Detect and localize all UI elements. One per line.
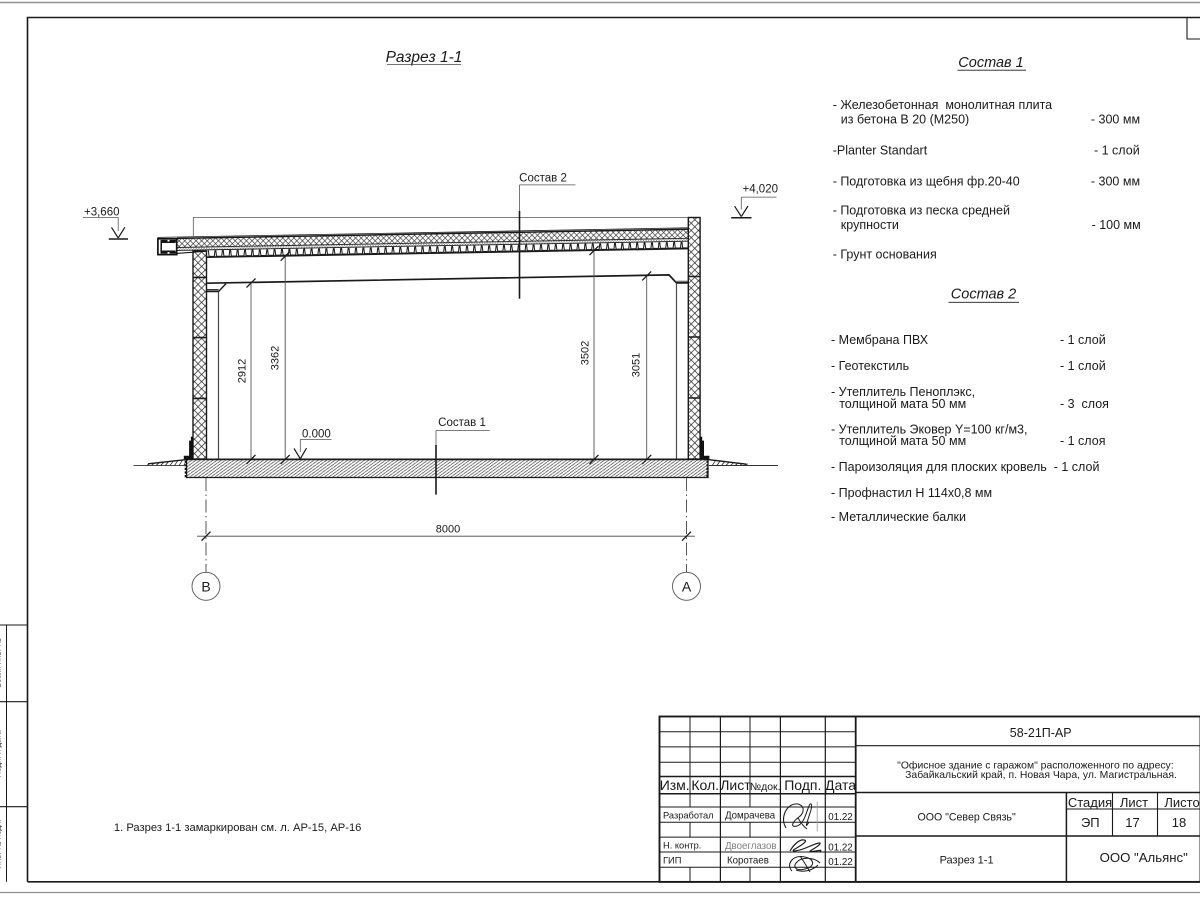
svg-text:из бетона В 20 (М250): из бетона В 20 (М250) [841, 113, 969, 127]
svg-text:-Planter Standart: -Planter Standart [833, 144, 928, 158]
svg-text:Подп. и дата: Подп. и дата [0, 730, 3, 778]
svg-text:+3,660: +3,660 [84, 207, 120, 219]
svg-text:ГИП: ГИП [663, 855, 681, 865]
svg-text:0.000: 0.000 [302, 428, 331, 440]
svg-text:17: 17 [1125, 815, 1139, 830]
svg-text:Лист: Лист [720, 777, 751, 793]
svg-text:01.22: 01.22 [828, 812, 853, 823]
svg-text:- Пароизоляция для плоских кро: - Пароизоляция для плоских кровель - 1 с… [831, 460, 1099, 474]
svg-text:- Мембрана ПВХ: - Мембрана ПВХ [831, 333, 929, 347]
svg-text:А: А [682, 578, 692, 594]
svg-text:толщиной мата 50 мм: толщиной мата 50 мм [839, 434, 966, 448]
svg-text:Разрез 1-1: Разрез 1-1 [386, 49, 463, 66]
svg-text:Листов: Листов [1164, 795, 1200, 810]
svg-text:2912: 2912 [237, 359, 249, 383]
svg-text:- Профнастил Н 114х0,8 мм: - Профнастил Н 114х0,8 мм [831, 486, 992, 500]
svg-text:ООО "Север Связь": ООО "Север Связь" [917, 812, 1015, 824]
svg-text:3502: 3502 [580, 341, 592, 365]
svg-text:Коротаев: Коротаев [727, 856, 769, 867]
svg-text:№док.: №док. [750, 781, 781, 793]
svg-text:Разрез 1-1: Разрез 1-1 [940, 854, 994, 866]
svg-text:Дата: Дата [825, 777, 856, 793]
svg-text:Подп.: Подп. [784, 777, 821, 793]
svg-text:3051: 3051 [631, 353, 643, 377]
svg-text:Кол.: Кол. [691, 777, 719, 793]
svg-text:18: 18 [1172, 815, 1186, 830]
svg-text:Забайкальский край, п. Новая Ч: Забайкальский край, п. Новая Чара, ул. М… [905, 769, 1177, 781]
svg-text:Н. контр.: Н. контр. [663, 841, 701, 851]
svg-text:- Грунт основания: - Грунт основания [833, 247, 937, 261]
svg-text:Взам. инв. №: Взам. инв. № [0, 638, 3, 688]
svg-text:- Подготовка из песка средней: - Подготовка из песка средней [833, 204, 1010, 218]
svg-text:- 1 слой: - 1 слой [1094, 144, 1140, 158]
svg-text:- 100 мм: - 100 мм [1092, 218, 1141, 232]
svg-text:Лист: Лист [1120, 795, 1148, 810]
svg-text:3362: 3362 [270, 346, 282, 370]
svg-text:Двоеглазов: Двоеглазов [725, 841, 777, 852]
svg-text:Состав 2: Состав 2 [519, 173, 567, 185]
svg-text:Состав 2: Состав 2 [951, 287, 1016, 303]
svg-text:- 1 слоя: - 1 слоя [1060, 434, 1105, 448]
svg-text:- Металлические балки: - Металлические балки [831, 510, 966, 524]
svg-text:Изм.: Изм. [660, 777, 690, 793]
svg-text:Стадия: Стадия [1068, 795, 1112, 810]
svg-text:- 1 слой: - 1 слой [1060, 359, 1106, 373]
svg-text:Домрачева: Домрачева [725, 811, 776, 822]
svg-text:Разработал: Разработал [663, 811, 714, 821]
svg-text:8000: 8000 [436, 524, 460, 536]
svg-text:толщиной мата 50 мм: толщиной мата 50 мм [839, 397, 966, 411]
svg-text:- Подготовка из щебня фр.20-40: - Подготовка из щебня фр.20-40 [833, 174, 1020, 188]
svg-text:Инв. № подл.: Инв. № подл. [0, 819, 3, 869]
svg-text:- Железобетонная монолитная п: - Железобетонная монолитная плита [833, 98, 1052, 112]
svg-text:01.22: 01.22 [828, 857, 853, 868]
svg-text:01.22: 01.22 [828, 842, 853, 853]
svg-text:Состав 1: Состав 1 [958, 55, 1023, 71]
svg-text:крупности: крупности [841, 218, 899, 232]
svg-text:1. Разрез 1-1 замаркирован см.: 1. Разрез 1-1 замаркирован см. л. АР-15,… [114, 822, 362, 834]
svg-text:Состав 1: Состав 1 [438, 417, 486, 429]
svg-text:+4,020: +4,020 [743, 184, 779, 196]
svg-text:- 1 слой: - 1 слой [1060, 333, 1106, 347]
svg-text:- 300 мм: - 300 мм [1091, 113, 1140, 127]
svg-text:ООО "Альянс": ООО "Альянс" [1100, 850, 1188, 865]
svg-text:58-21П-АР: 58-21П-АР [1010, 726, 1072, 740]
svg-text:- Геотекстиль: - Геотекстиль [831, 359, 909, 373]
svg-text:- 3 слоя: - 3 слоя [1060, 397, 1109, 411]
svg-text:В: В [201, 578, 210, 594]
svg-text:- 300 мм: - 300 мм [1091, 174, 1140, 188]
svg-text:ЭП: ЭП [1081, 815, 1100, 830]
